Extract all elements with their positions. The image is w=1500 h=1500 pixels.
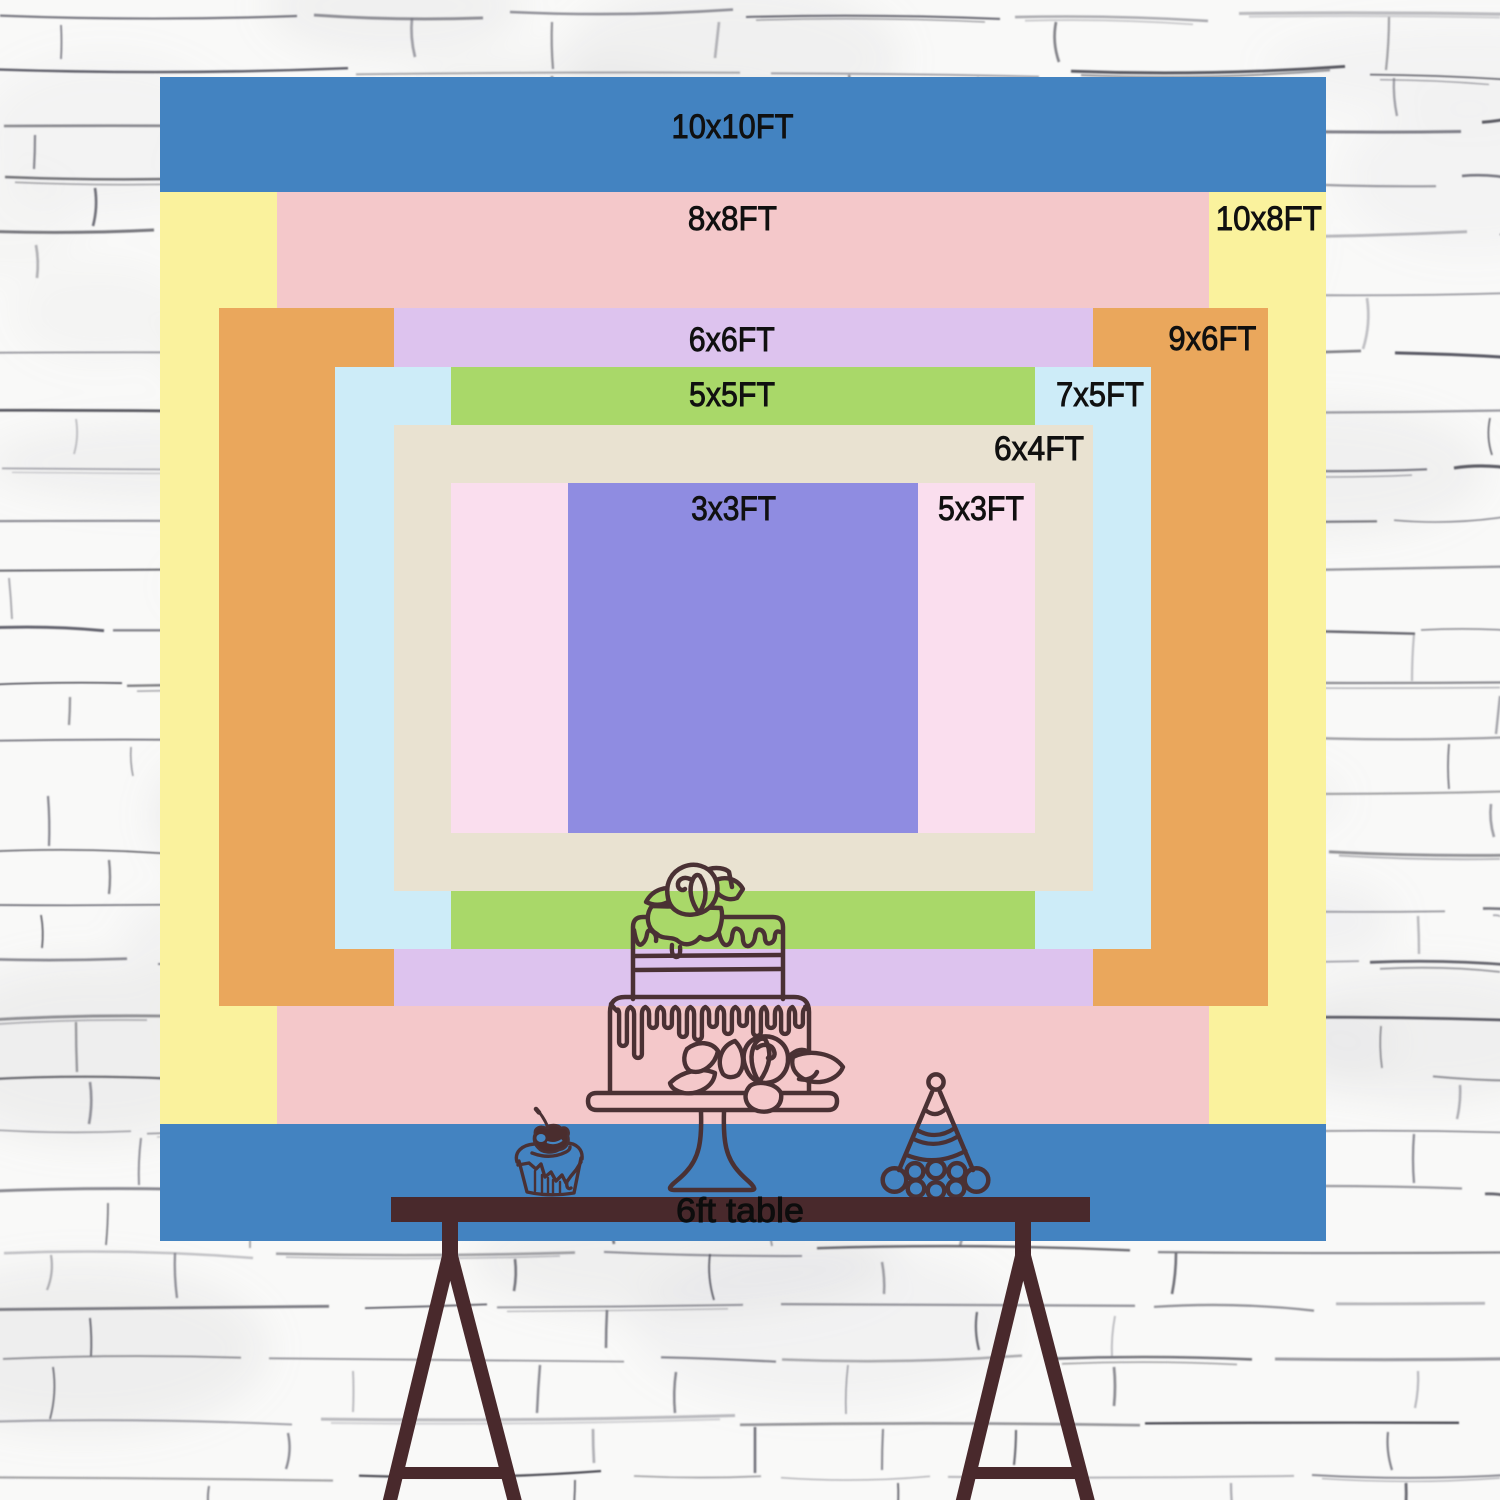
svg-text:6x6FT: 6x6FT [689, 321, 775, 359]
svg-text:10x8FT: 10x8FT [1216, 200, 1322, 238]
svg-text:8x8FT: 8x8FT [688, 200, 777, 238]
svg-text:6x4FT: 6x4FT [994, 430, 1084, 468]
svg-text:9x6FT: 9x6FT [1168, 320, 1256, 358]
svg-text:10x10FT: 10x10FT [672, 108, 794, 146]
svg-text:5x3FT: 5x3FT [938, 490, 1024, 528]
svg-text:3x3FT: 3x3FT [691, 490, 776, 528]
svg-text:5x5FT: 5x5FT [689, 376, 775, 414]
svg-text:6ft table: 6ft table [676, 1192, 804, 1230]
svg-text:7x5FT: 7x5FT [1056, 376, 1144, 414]
